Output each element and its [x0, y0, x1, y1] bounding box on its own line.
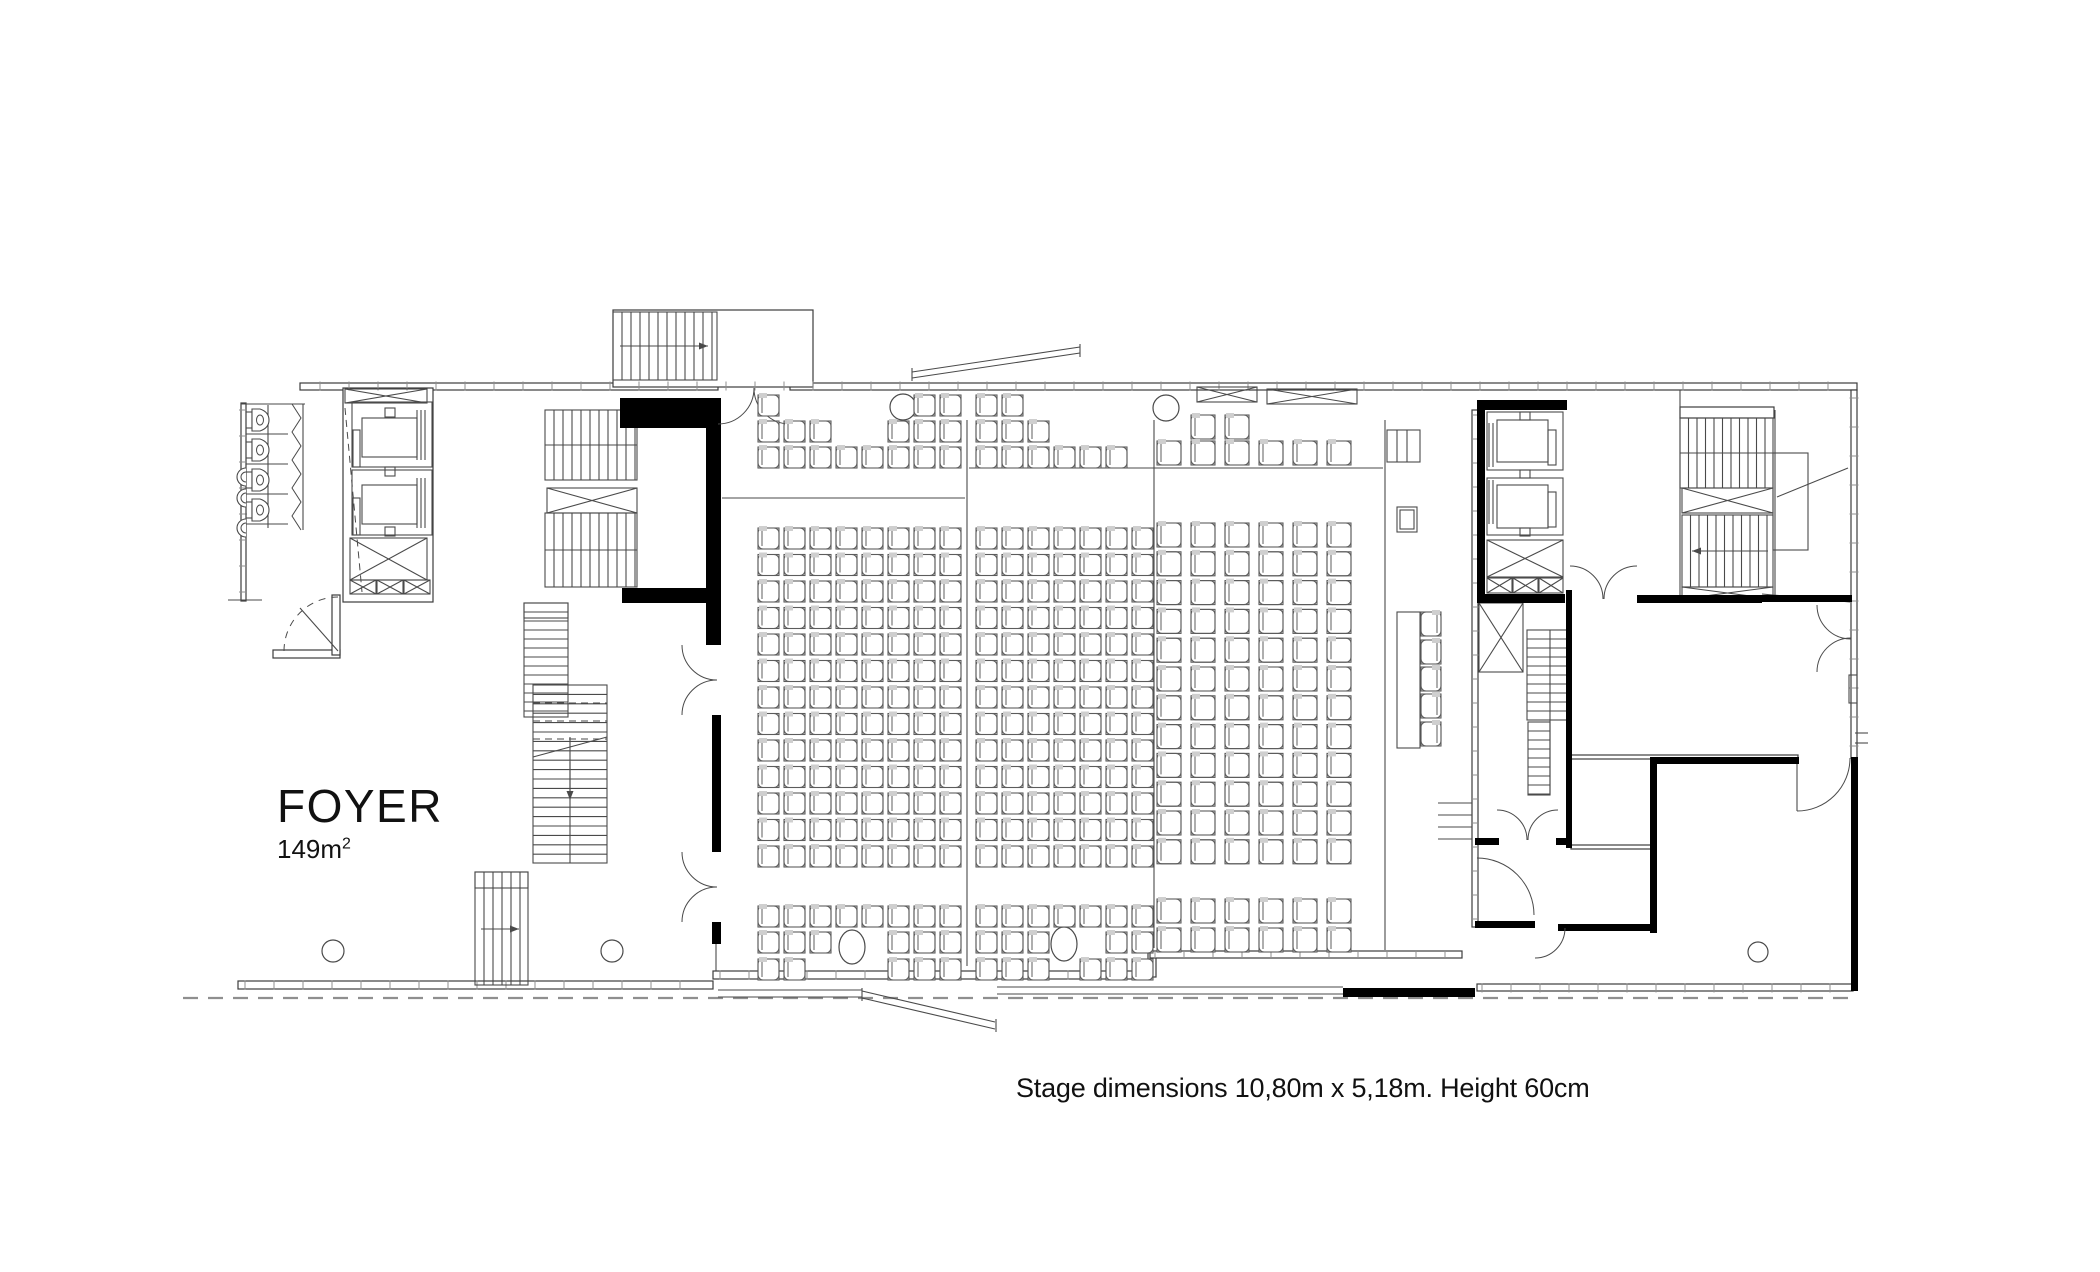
stage-dimensions-caption: Stage dimensions 10,80m x 5,18m. Height … [1016, 1075, 1590, 1102]
floor-plan-page: FOYER 149m2 Stage dimensions 10,80m x 5,… [0, 0, 2100, 1272]
room-area-exponent: 2 [342, 835, 351, 852]
fixtures-rects [352, 402, 1857, 888]
room-label-foyer: FOYER 149m2 [277, 783, 443, 862]
room-name: FOYER [277, 783, 443, 829]
sanitary-fixtures [237, 404, 301, 537]
audience-seating [758, 393, 1441, 980]
room-area: 149m2 [277, 836, 443, 862]
room-area-value: 149m [277, 834, 342, 864]
